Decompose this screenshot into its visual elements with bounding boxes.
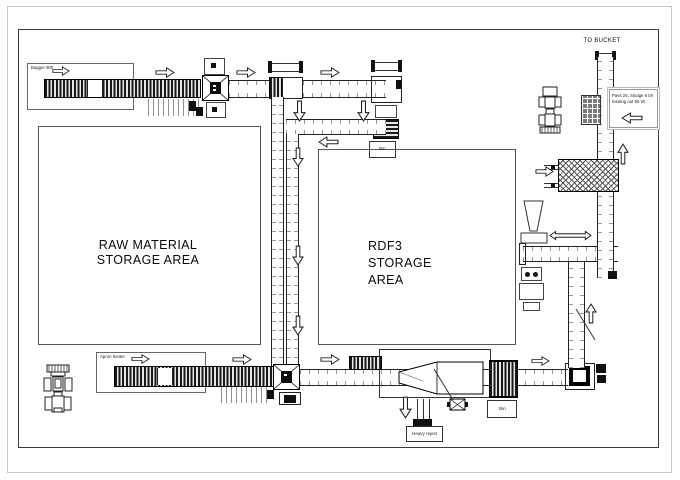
flow-arrow-u <box>585 303 597 324</box>
flow-arrow-l <box>621 112 643 124</box>
flow-arrow-r <box>52 66 70 76</box>
flow-arrow-r <box>232 354 252 365</box>
flow-arrow-d <box>292 315 304 336</box>
flow-arrow-r <box>236 67 256 78</box>
flow-arrow-r <box>155 67 175 78</box>
plant-layout-drawing: RAW MATERIAL STORAGE AREA RDF3 STORAGE A… <box>0 0 680 480</box>
flow-arrow-r <box>531 356 550 366</box>
flow-arrow-r <box>320 67 340 78</box>
flow-arrow-d <box>293 100 306 122</box>
flow-arrow-d <box>292 147 304 167</box>
flow-arrow-r <box>131 354 150 364</box>
flow-arrow-d <box>292 245 304 266</box>
flow-arrow-dbl <box>549 229 592 242</box>
flow-arrow-l <box>318 136 339 148</box>
flow-arrow-r <box>320 354 340 365</box>
flow-arrow-d <box>399 396 412 419</box>
flow-arrow-layer <box>0 0 680 480</box>
flow-arrow-u <box>617 143 629 165</box>
flow-arrow-d <box>357 100 370 122</box>
flow-arrow-r <box>535 166 554 177</box>
